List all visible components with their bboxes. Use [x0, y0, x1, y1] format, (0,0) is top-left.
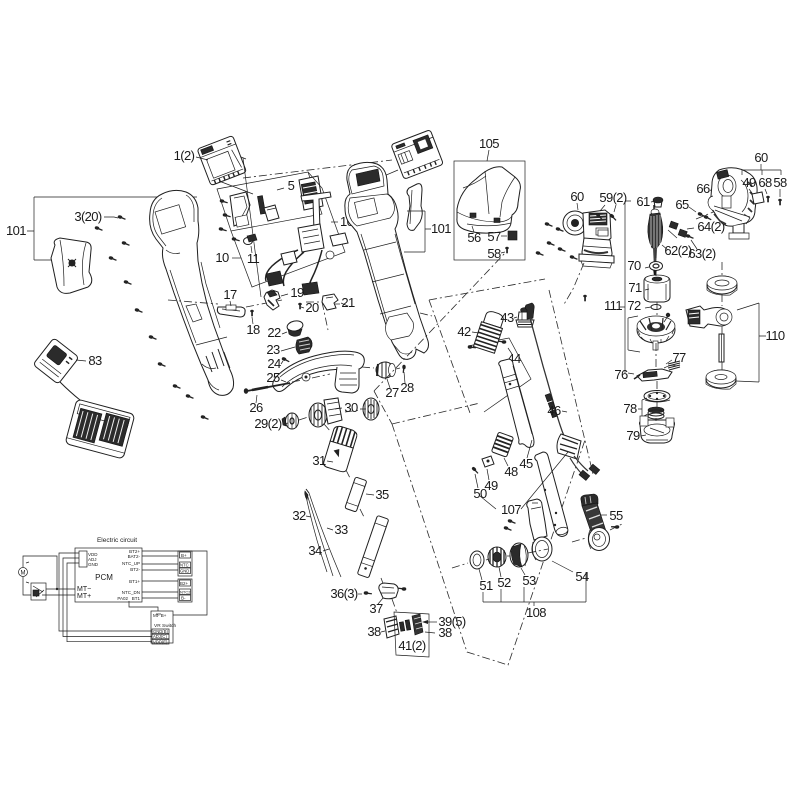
svg-text:43: 43 [500, 310, 514, 325]
svg-text:52: 52 [497, 575, 511, 590]
svg-text:NTC_DN: NTC_DN [122, 590, 140, 595]
svg-text:21: 21 [341, 295, 355, 310]
svg-text:GND: GND [88, 562, 99, 567]
svg-text:BAT2-: BAT2- [128, 554, 141, 559]
svg-text:33: 33 [334, 522, 348, 537]
svg-text:20: 20 [305, 300, 319, 315]
svg-text:NTC: NTC [180, 563, 189, 568]
svg-text:37: 37 [369, 601, 383, 616]
svg-text:BT1: BT1 [132, 596, 141, 601]
svg-text:46: 46 [547, 403, 561, 418]
svg-text:PCM: PCM [95, 573, 113, 582]
svg-text:83: 83 [88, 353, 102, 368]
svg-text:58: 58 [773, 175, 787, 190]
svg-text:27: 27 [385, 385, 399, 400]
svg-text:101: 101 [431, 221, 451, 236]
svg-text:110: 110 [766, 328, 785, 343]
svg-text:58: 58 [487, 246, 501, 261]
svg-text:79: 79 [626, 428, 640, 443]
svg-text:49: 49 [742, 175, 756, 190]
svg-text:5: 5 [288, 178, 295, 193]
svg-text:34: 34 [308, 543, 322, 558]
svg-text:60: 60 [754, 150, 768, 165]
svg-text:61: 61 [636, 194, 650, 209]
svg-text:18: 18 [246, 322, 260, 337]
svg-text:23: 23 [266, 342, 280, 357]
svg-text:70: 70 [627, 258, 641, 273]
svg-text:Electric circuit: Electric circuit [97, 537, 137, 544]
svg-text:65: 65 [675, 197, 689, 212]
svg-text:35: 35 [375, 487, 389, 502]
svg-text:111: 111 [604, 298, 622, 313]
svg-text:30: 30 [344, 400, 358, 415]
svg-text:57: 57 [487, 229, 501, 244]
svg-text:60: 60 [570, 189, 584, 204]
svg-text:32: 32 [292, 508, 306, 523]
svg-text:22: 22 [267, 325, 281, 340]
svg-text:66: 66 [696, 181, 710, 196]
svg-text:VDD(E): VDD(E) [153, 639, 168, 644]
svg-text:36(3): 36(3) [330, 586, 358, 601]
svg-text:45: 45 [519, 456, 533, 471]
svg-text:25: 25 [266, 370, 280, 385]
svg-text:54: 54 [575, 569, 589, 584]
svg-text:BT2-: BT2- [130, 567, 140, 572]
svg-text:PA02: PA02 [117, 596, 128, 601]
svg-text:63(2): 63(2) [688, 246, 716, 261]
svg-text:B+: B+ [181, 553, 187, 558]
svg-text:38: 38 [438, 625, 452, 640]
svg-text:77: 77 [672, 350, 686, 365]
svg-text:53: 53 [522, 573, 536, 588]
svg-text:17: 17 [223, 287, 237, 302]
svg-text:10: 10 [215, 250, 229, 265]
svg-text:101: 101 [6, 223, 26, 238]
svg-text:38: 38 [367, 624, 381, 639]
svg-text:B2+: B2+ [180, 581, 189, 586]
svg-text:3(20): 3(20) [74, 209, 102, 224]
svg-text:M: M [21, 571, 26, 577]
svg-text:55: 55 [609, 508, 623, 523]
svg-text:24: 24 [267, 356, 281, 371]
svg-text:BT1+: BT1+ [129, 579, 140, 584]
svg-text:11: 11 [247, 251, 260, 266]
svg-text:76: 76 [614, 367, 628, 382]
svg-text:MT−: MT− [77, 586, 91, 593]
svg-text:48: 48 [504, 464, 518, 479]
svg-text:B-: B- [181, 596, 186, 601]
svg-text:29(2): 29(2) [254, 416, 282, 431]
svg-text:NTC2: NTC2 [180, 590, 191, 595]
svg-text:1(2): 1(2) [174, 148, 195, 163]
svg-text:19: 19 [290, 285, 304, 300]
svg-text:MT+: MT+ [77, 593, 91, 600]
svg-text:50: 50 [473, 486, 487, 501]
svg-text:68: 68 [758, 175, 772, 190]
svg-text:31: 31 [312, 453, 326, 468]
svg-text:59(2): 59(2) [599, 190, 627, 205]
svg-text:GND: GND [180, 569, 189, 574]
svg-text:41(2): 41(2) [398, 638, 426, 653]
svg-text:28: 28 [400, 380, 414, 395]
svg-text:56: 56 [467, 230, 481, 245]
svg-text:51: 51 [479, 578, 493, 593]
svg-text:72: 72 [627, 298, 641, 313]
svg-text:42: 42 [457, 324, 471, 339]
svg-text:78: 78 [623, 401, 637, 416]
svg-text:105: 105 [479, 136, 499, 151]
svg-text:NTC_UP: NTC_UP [122, 561, 140, 566]
svg-text:107: 107 [501, 502, 521, 517]
svg-text:108: 108 [526, 605, 546, 620]
svg-text:71: 71 [628, 280, 642, 295]
